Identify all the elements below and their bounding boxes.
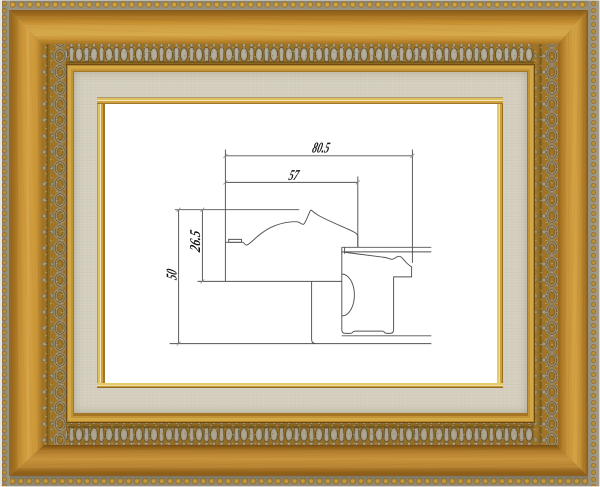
svg-text:26.5: 26.5 [187,228,204,254]
svg-text:57: 57 [287,167,302,184]
svg-text:50: 50 [164,267,181,281]
svg-text:80.5: 80.5 [311,140,332,157]
